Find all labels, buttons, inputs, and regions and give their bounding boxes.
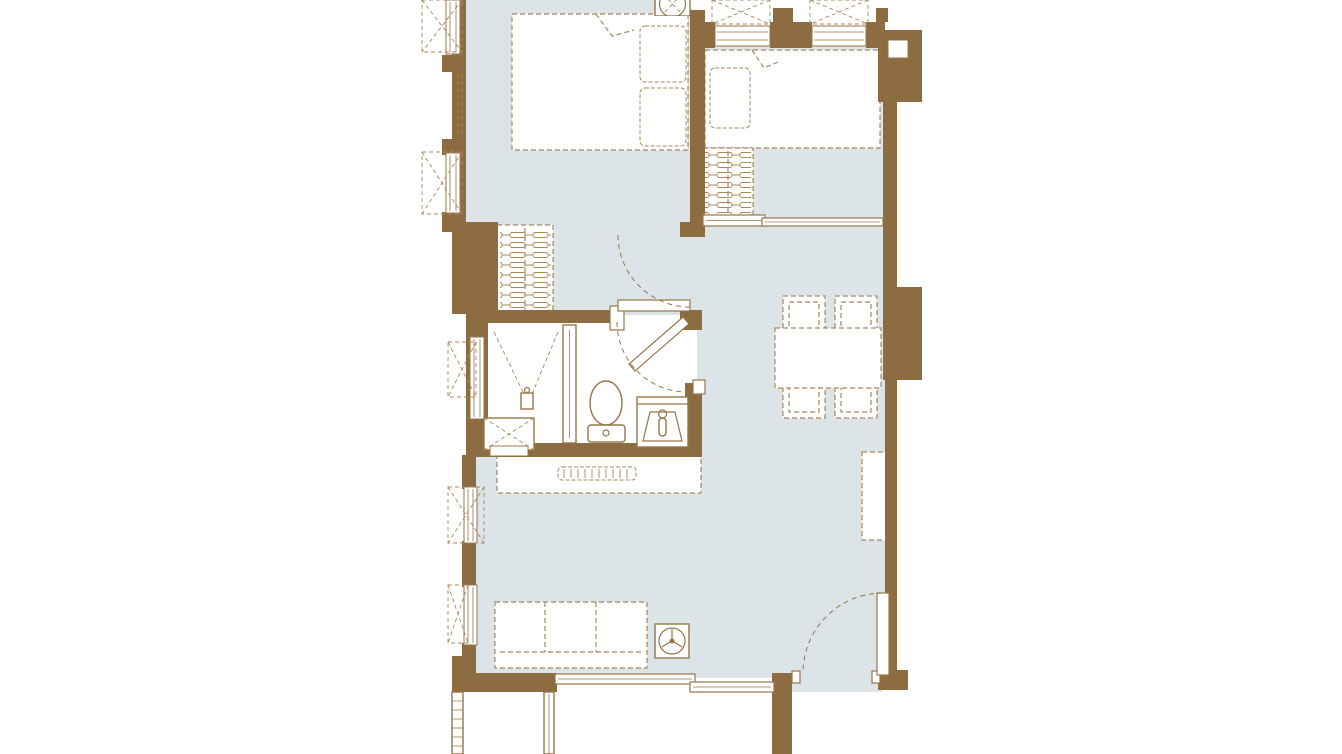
vanity-sink	[637, 397, 688, 447]
balcony-partition	[544, 692, 554, 754]
window	[464, 487, 477, 543]
window	[715, 26, 770, 46]
ac-unit	[712, 0, 770, 24]
door-leaf	[618, 300, 690, 311]
entry-pier	[772, 673, 792, 754]
floor-plan	[0, 0, 1342, 754]
pillow	[710, 68, 750, 128]
wardrobe-bedroom-2	[703, 148, 753, 216]
ac-unit	[484, 418, 534, 456]
column-notch	[888, 40, 908, 58]
pillow	[640, 88, 686, 146]
bathroom-top-wall	[488, 310, 612, 323]
window	[464, 585, 477, 645]
balcony	[452, 692, 554, 754]
dining-table	[775, 328, 881, 388]
shower-glass-partition	[563, 325, 576, 443]
door-jamb	[792, 671, 800, 683]
double-bed	[512, 14, 688, 150]
column	[883, 287, 922, 380]
bedroom-divider-wall	[690, 10, 705, 237]
entry-floor	[790, 675, 882, 692]
exhaust-fan	[655, 0, 690, 17]
window	[446, 153, 460, 213]
bottom-wall	[452, 673, 557, 692]
window	[446, 0, 460, 54]
ac-unit	[810, 0, 868, 24]
door-leaf	[629, 317, 689, 371]
wall-block	[452, 222, 498, 314]
sofa	[495, 602, 647, 668]
door-jamb	[693, 380, 705, 394]
tv	[558, 467, 636, 480]
toilet	[588, 381, 625, 442]
balcony-railing	[452, 692, 463, 754]
window	[812, 26, 866, 46]
single-bed	[705, 50, 880, 148]
right-wall	[883, 30, 897, 290]
floor-plan-svg	[0, 0, 1342, 754]
shower	[494, 332, 558, 409]
tv-console	[497, 455, 701, 493]
wardrobe-bedroom-1	[497, 225, 553, 313]
fan	[655, 624, 689, 658]
pillow	[640, 26, 686, 82]
door-leaf	[877, 593, 889, 675]
